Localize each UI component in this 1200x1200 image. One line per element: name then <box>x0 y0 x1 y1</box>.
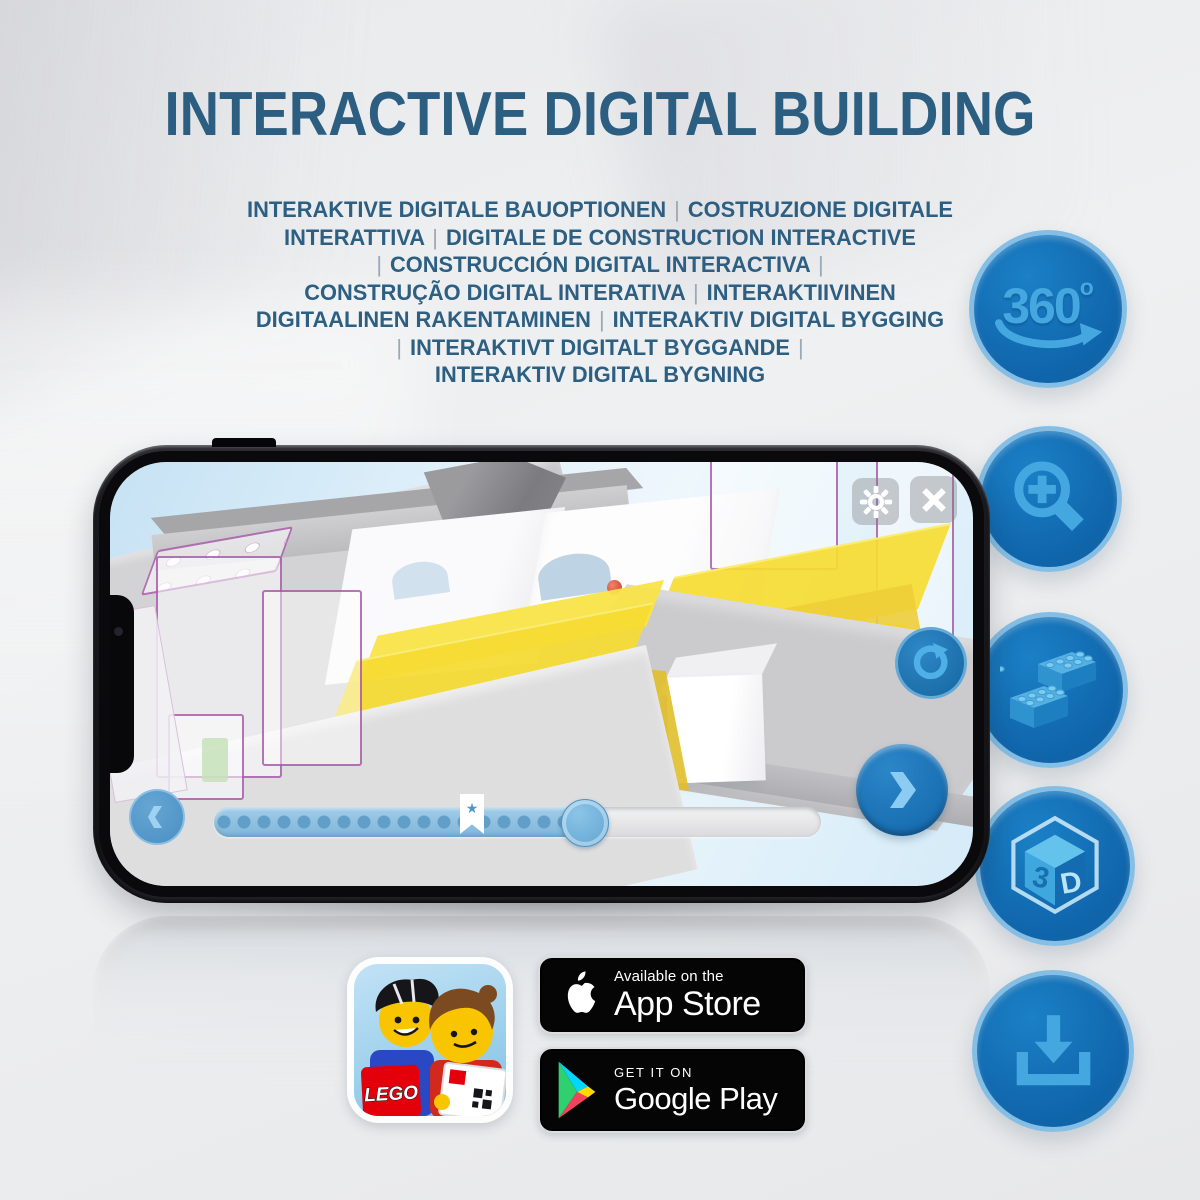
rotate-arrow-icon <box>910 642 952 684</box>
google-play-tagline: GET IT ON <box>614 1066 777 1079</box>
feature-3d-icon: 3 D <box>975 786 1135 946</box>
marketing-page: INTERACTIVE DIGITAL BUILDING INTERAKTIVE… <box>0 0 1200 1200</box>
google-play-logo-icon <box>540 1058 614 1122</box>
settings-button[interactable] <box>852 478 899 525</box>
svg-text:LEGO: LEGO <box>364 1083 419 1107</box>
smartphone-mockup: ★ <box>93 445 990 903</box>
download-arrow-icon <box>1007 1005 1099 1097</box>
page-title: INTERACTIVE DIGITAL BUILDING <box>72 84 1128 146</box>
close-button[interactable] <box>910 476 957 523</box>
feature-360-view-icon: 360o <box>969 230 1127 388</box>
rotate-model-button[interactable] <box>895 627 967 699</box>
phone-volume-button <box>213 888 249 895</box>
google-play-badge[interactable]: GET IT ON Google Play <box>538 1047 807 1133</box>
chevron-right-icon <box>882 768 922 812</box>
lego-bricks-icon <box>1000 640 1100 740</box>
app-icon-artwork: LEGO <box>354 964 506 1116</box>
magnifier-plus-icon <box>1005 455 1093 543</box>
phone-volume-button <box>358 888 425 895</box>
phone-screen: ★ <box>110 462 973 886</box>
feature-brick-icon <box>972 612 1128 768</box>
progress-fill <box>214 807 590 837</box>
ghost-brick-outline <box>262 590 362 766</box>
app-store-tagline: Available on the <box>614 969 761 984</box>
app-store-name: App Store <box>614 987 761 1021</box>
app-store-badge[interactable]: Available on the App Store <box>538 956 807 1034</box>
3d-cube-icon: 3 D <box>1003 814 1107 918</box>
front-camera-icon <box>114 627 123 636</box>
google-play-name: Google Play <box>614 1083 777 1114</box>
feature-download-icon <box>972 970 1134 1132</box>
next-step-button[interactable] <box>856 744 948 836</box>
curved-arrow-icon <box>992 317 1104 355</box>
previous-step-button[interactable] <box>129 789 185 845</box>
chevron-left-icon <box>146 804 168 830</box>
phone-notch <box>110 595 134 773</box>
feature-zoom-icon <box>976 426 1122 572</box>
apple-logo-icon <box>540 970 614 1020</box>
phone-power-button <box>212 438 276 447</box>
build-progress-slider[interactable]: ★ <box>214 807 821 837</box>
slider-handle[interactable] <box>561 799 609 847</box>
lego-life-app-icon[interactable]: LEGO <box>347 957 513 1123</box>
subtitle-line: INTERAKTIVE DIGITALE BAUOPTIONEN | COSTR… <box>18 196 1182 224</box>
gear-icon <box>859 485 893 519</box>
lego-green-accessory <box>202 738 228 782</box>
close-icon <box>919 485 949 515</box>
phone-volume-button <box>272 888 340 895</box>
minifigures-illustration: LEGO <box>354 964 506 1116</box>
